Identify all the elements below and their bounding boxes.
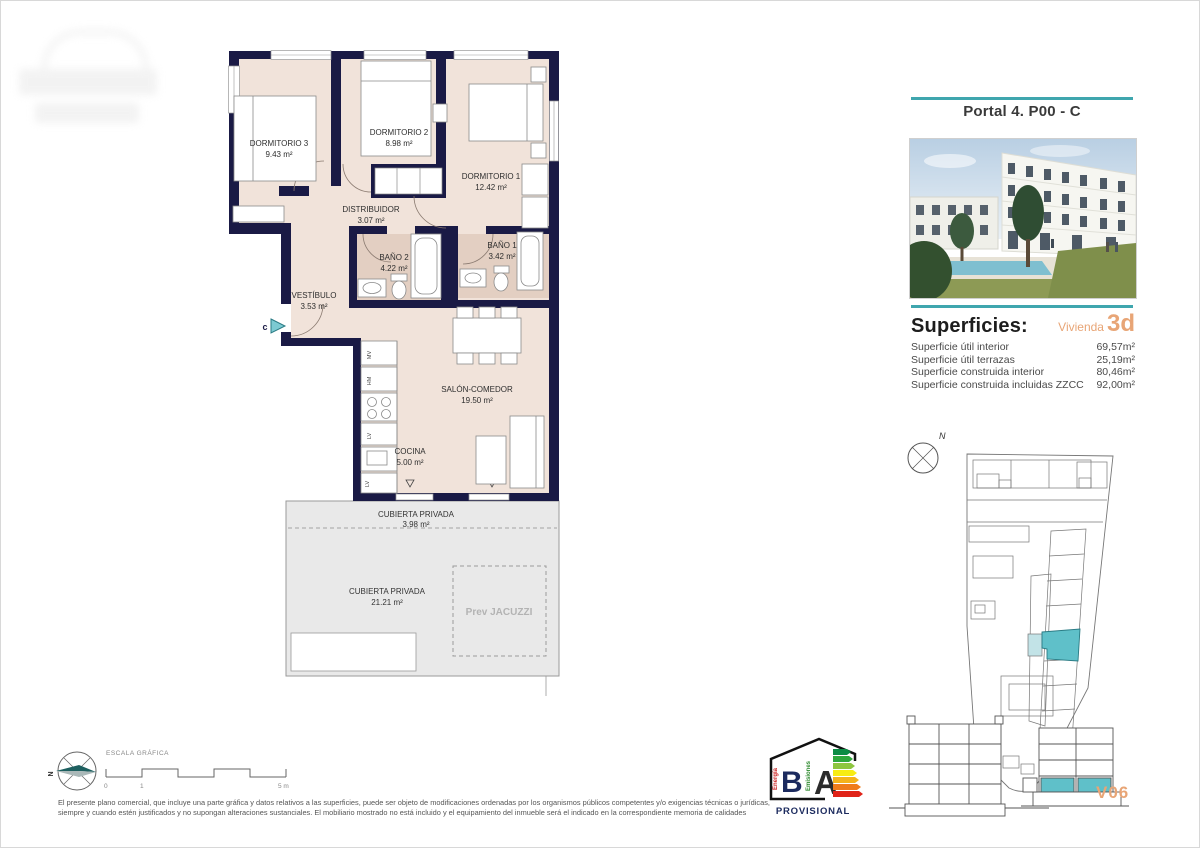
watermark-text-blob-2 bbox=[35, 103, 139, 123]
svg-text:5.00 m²: 5.00 m² bbox=[396, 458, 423, 467]
superficies-row: Superficie construida interior80,46m² bbox=[911, 366, 1135, 379]
scale-tick-1: 1 bbox=[140, 783, 144, 790]
room-label-bano2: BAÑO 2 bbox=[379, 253, 409, 262]
disclaimer-line-1: El presente plano comercial, que incluye… bbox=[58, 798, 784, 808]
svg-text:9.43 m²: 9.43 m² bbox=[265, 150, 292, 159]
scale-bar: ESCALA GRÁFICA 0 1 5 m bbox=[101, 745, 301, 795]
room-label-salon: SALÓN-COMEDOR bbox=[441, 385, 513, 394]
svg-text:3.42 m²: 3.42 m² bbox=[488, 252, 515, 261]
terrace-upper-label: CUBIERTA PRIVADA bbox=[378, 510, 455, 519]
developer-logo-watermark bbox=[13, 29, 163, 139]
unit-highlight bbox=[1042, 629, 1080, 661]
plan-version-code: V06 bbox=[1096, 783, 1129, 803]
svg-text:19.50 m²: 19.50 m² bbox=[461, 396, 493, 405]
terrace: CUBIERTA PRIVADA 3.98 m² CUBIERTA PRIVAD… bbox=[286, 501, 559, 696]
energy-arrows-icon bbox=[833, 749, 863, 797]
room-label-bano1: BAÑO 1 bbox=[487, 241, 517, 250]
svg-text:8.98 m²: 8.98 m² bbox=[385, 139, 412, 148]
section-highlight-floor bbox=[1041, 778, 1074, 792]
building-render bbox=[909, 138, 1137, 299]
site-compass: N bbox=[908, 431, 946, 473]
plan-compass: N bbox=[47, 743, 105, 801]
superficies-block: Superficies: Vivienda3d Superficie útil … bbox=[911, 310, 1135, 391]
room-label-d3: DORMITORIO 3 bbox=[250, 139, 309, 148]
room-label-distribuidor: DISTRIBUIDOR bbox=[342, 205, 400, 214]
terrace-main-area: 21.21 m² bbox=[371, 598, 403, 607]
svg-text:4.22 m²: 4.22 m² bbox=[380, 264, 407, 273]
superficies-row: Superficie útil terrazas25,19m² bbox=[911, 354, 1135, 367]
svg-text:3.53 m²: 3.53 m² bbox=[300, 302, 327, 311]
watermark-arc bbox=[41, 29, 149, 69]
compass-needle-tail bbox=[56, 771, 96, 777]
svg-text:MV: MV bbox=[367, 351, 373, 360]
vivienda-tag: Vivienda3d bbox=[1058, 310, 1135, 338]
scale-bar-label: ESCALA GRÁFICA bbox=[106, 748, 169, 757]
svg-text:LV: LV bbox=[367, 433, 373, 440]
north-label: N bbox=[48, 771, 55, 776]
north-label: N bbox=[939, 431, 946, 441]
svg-text:HM: HM bbox=[367, 376, 373, 385]
room-label-d2: DORMITORIO 2 bbox=[370, 128, 429, 137]
site-plan-and-sections: N bbox=[881, 426, 1141, 826]
room-label-d1: DORMITORIO 1 bbox=[462, 172, 521, 181]
scale-tick-5m: 5 m bbox=[278, 783, 289, 790]
superficies-row: Superficie útil interior69,57m² bbox=[911, 341, 1135, 354]
entrance-marker: c bbox=[262, 319, 285, 333]
render-scene bbox=[910, 139, 1136, 298]
room-label-vestibulo: VESTÍBULO bbox=[292, 291, 337, 300]
energia-label: Energía bbox=[773, 767, 779, 790]
emisiones-label: Emisiones bbox=[806, 760, 812, 791]
entrance-arrow-icon bbox=[271, 319, 285, 333]
svg-text:12.42 m²: 12.42 m² bbox=[475, 183, 507, 192]
scale-tick-0: 0 bbox=[104, 783, 108, 790]
vivienda-code: 3d bbox=[1107, 310, 1135, 337]
vivienda-label: Vivienda bbox=[1058, 320, 1104, 334]
entrance-letter: c bbox=[262, 322, 267, 332]
floor-plan: CUBIERTA PRIVADA 3.98 m² CUBIERTA PRIVAD… bbox=[211, 36, 581, 701]
superficies-heading: Superficies: bbox=[911, 315, 1028, 338]
room-label-cocina: COCINA bbox=[394, 447, 426, 456]
terrace-main-label: CUBIERTA PRIVADA bbox=[349, 587, 426, 596]
page-title: Portal 4. P00 - C bbox=[906, 103, 1138, 120]
provisional-label: PROVISIONAL bbox=[776, 806, 850, 817]
brochure-page: CUBIERTA PRIVADA 3.98 m² CUBIERTA PRIVAD… bbox=[0, 0, 1200, 848]
legal-disclaimer: El presente plano comercial, que incluye… bbox=[58, 798, 784, 818]
svg-text:LV: LV bbox=[365, 481, 371, 488]
superficies-rule bbox=[911, 305, 1133, 308]
jacuzzi-label: Prev JACUZZI bbox=[466, 607, 533, 618]
terrace-upper-area: 3.98 m² bbox=[402, 520, 429, 529]
wardrobe-d2 bbox=[375, 168, 442, 194]
disclaimer-line-2: siempre y cuando estén justificados y no… bbox=[58, 808, 784, 818]
unit-terrace-highlight bbox=[1028, 634, 1042, 656]
svg-text:3.07 m²: 3.07 m² bbox=[357, 216, 384, 225]
compass-needle-icon bbox=[56, 765, 96, 772]
energy-letter-b: B bbox=[781, 766, 803, 799]
watermark-text-blob-1 bbox=[19, 69, 157, 95]
title-rule bbox=[911, 97, 1133, 100]
superficies-row: Superficie construida incluidas ZZCC92,0… bbox=[911, 379, 1135, 392]
